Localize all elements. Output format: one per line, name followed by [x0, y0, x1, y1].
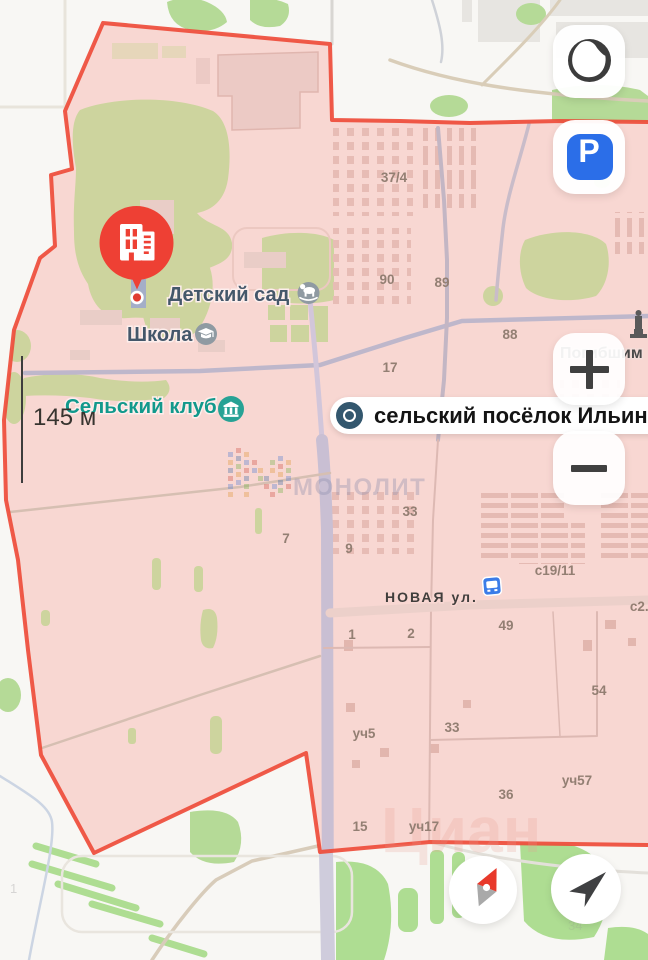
svg-text:НОВАЯ ул.: НОВАЯ ул.	[385, 589, 478, 605]
svg-text:Школа: Школа	[127, 324, 193, 346]
svg-text:15: 15	[352, 819, 368, 834]
svg-text:с19/11: с19/11	[535, 563, 576, 578]
svg-text:37/4: 37/4	[381, 170, 408, 185]
svg-text:54: 54	[591, 683, 607, 698]
svg-text:МОНОЛИТ: МОНОЛИТ	[293, 474, 426, 501]
svg-text:уч17: уч17	[409, 819, 439, 834]
svg-text:7: 7	[282, 531, 290, 546]
svg-text:уч57: уч57	[562, 773, 592, 788]
svg-text:уч5: уч5	[353, 726, 376, 741]
svg-text:36: 36	[498, 787, 514, 802]
svg-text:2: 2	[407, 626, 415, 641]
svg-text:88: 88	[502, 327, 518, 342]
svg-text:17: 17	[382, 360, 397, 375]
svg-text:1: 1	[348, 627, 356, 642]
svg-text:49: 49	[498, 618, 513, 633]
svg-text:33: 33	[402, 504, 418, 519]
svg-text:с2...: с2...	[630, 599, 648, 614]
svg-text:1: 1	[10, 881, 17, 896]
svg-text:9: 9	[345, 541, 353, 556]
svg-text:Детский сад: Детский сад	[168, 284, 290, 306]
svg-text:33: 33	[444, 720, 460, 735]
svg-text:90: 90	[379, 272, 394, 287]
svg-text:89: 89	[434, 275, 449, 290]
